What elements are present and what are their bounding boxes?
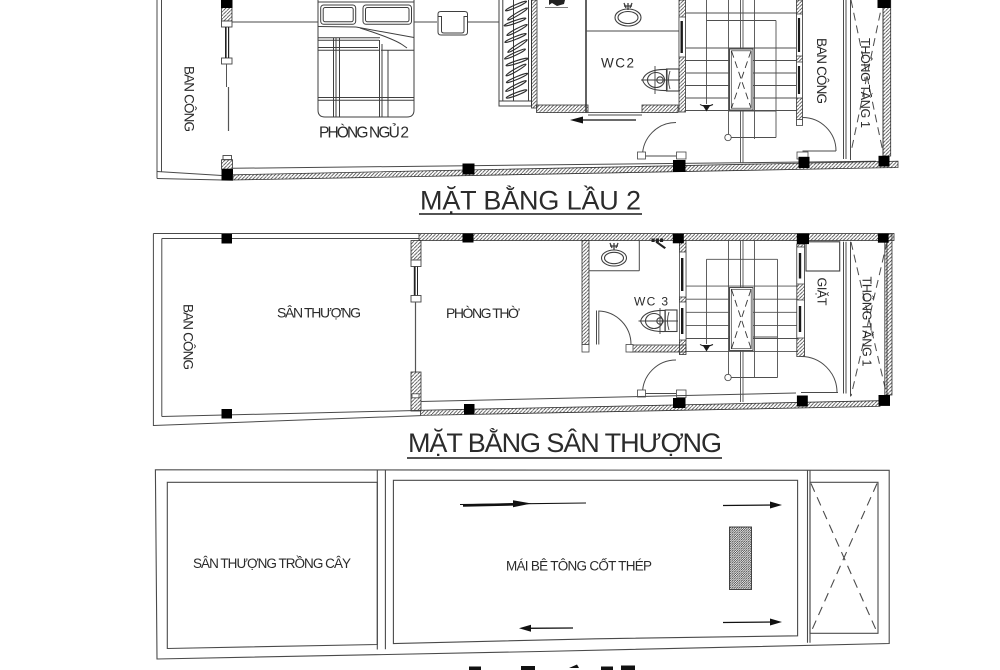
svg-text:THÔNG TẦNG 1: THÔNG TẦNG 1 <box>858 38 873 128</box>
svg-text:BAN CÔNG: BAN CÔNG <box>181 304 196 370</box>
svg-text:PHÒNG NGỦ 2: PHÒNG NGỦ 2 <box>319 124 409 142</box>
svg-text:SÂN THƯỢNG TRỒNG CÂY: SÂN THƯỢNG TRỒNG CÂY <box>193 556 351 571</box>
svg-text:SÂN THƯỢNG: SÂN THƯỢNG <box>277 305 361 321</box>
svg-text:WC 3: WC 3 <box>634 295 668 309</box>
svg-text:MẶT BẰNG LẦU 2: MẶT BẰNG LẦU 2 <box>420 185 641 216</box>
svg-text:GIẶT: GIẶT <box>815 278 830 306</box>
svg-text:MÁI BÊ TÔNG CỐT THÉP: MÁI BÊ TÔNG CỐT THÉP <box>506 559 652 574</box>
svg-text:BAN CÔNG: BAN CÔNG <box>814 38 829 104</box>
svg-text:BAN CÔNG: BAN CÔNG <box>182 66 197 132</box>
svg-text:WC2: WC2 <box>601 56 634 71</box>
svg-text:THÔNG TẦNG 1: THÔNG TẦNG 1 <box>860 277 875 367</box>
svg-text:MẶT BẰNG SÂN THƯỢNG: MẶT BẰNG SÂN THƯỢNG <box>408 427 722 458</box>
svg-text:PHÒNG THỜ: PHÒNG THỜ <box>446 305 520 321</box>
